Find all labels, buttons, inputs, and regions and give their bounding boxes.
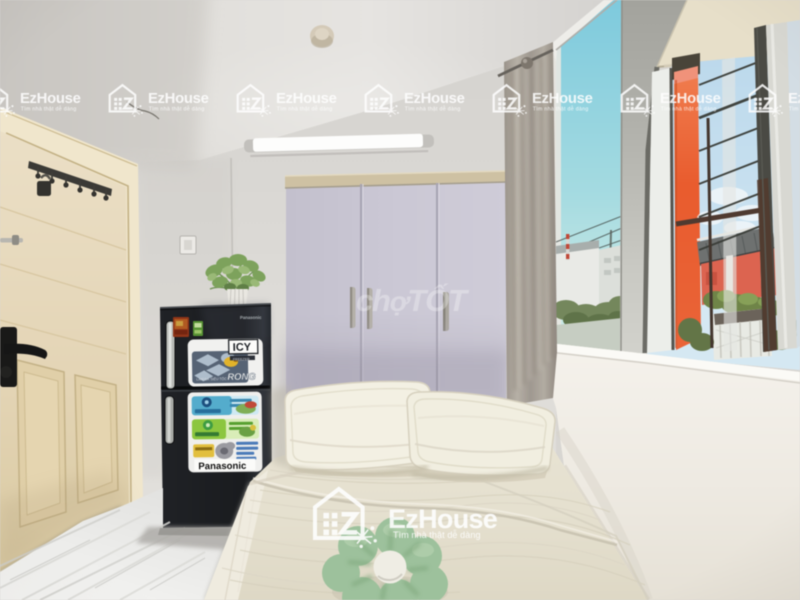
svg-text:Tìm nhà thật dễ dàng: Tìm nhà thật dễ dàng bbox=[393, 530, 481, 540]
svg-text:chợTỐT: chợTỐT bbox=[356, 282, 470, 318]
